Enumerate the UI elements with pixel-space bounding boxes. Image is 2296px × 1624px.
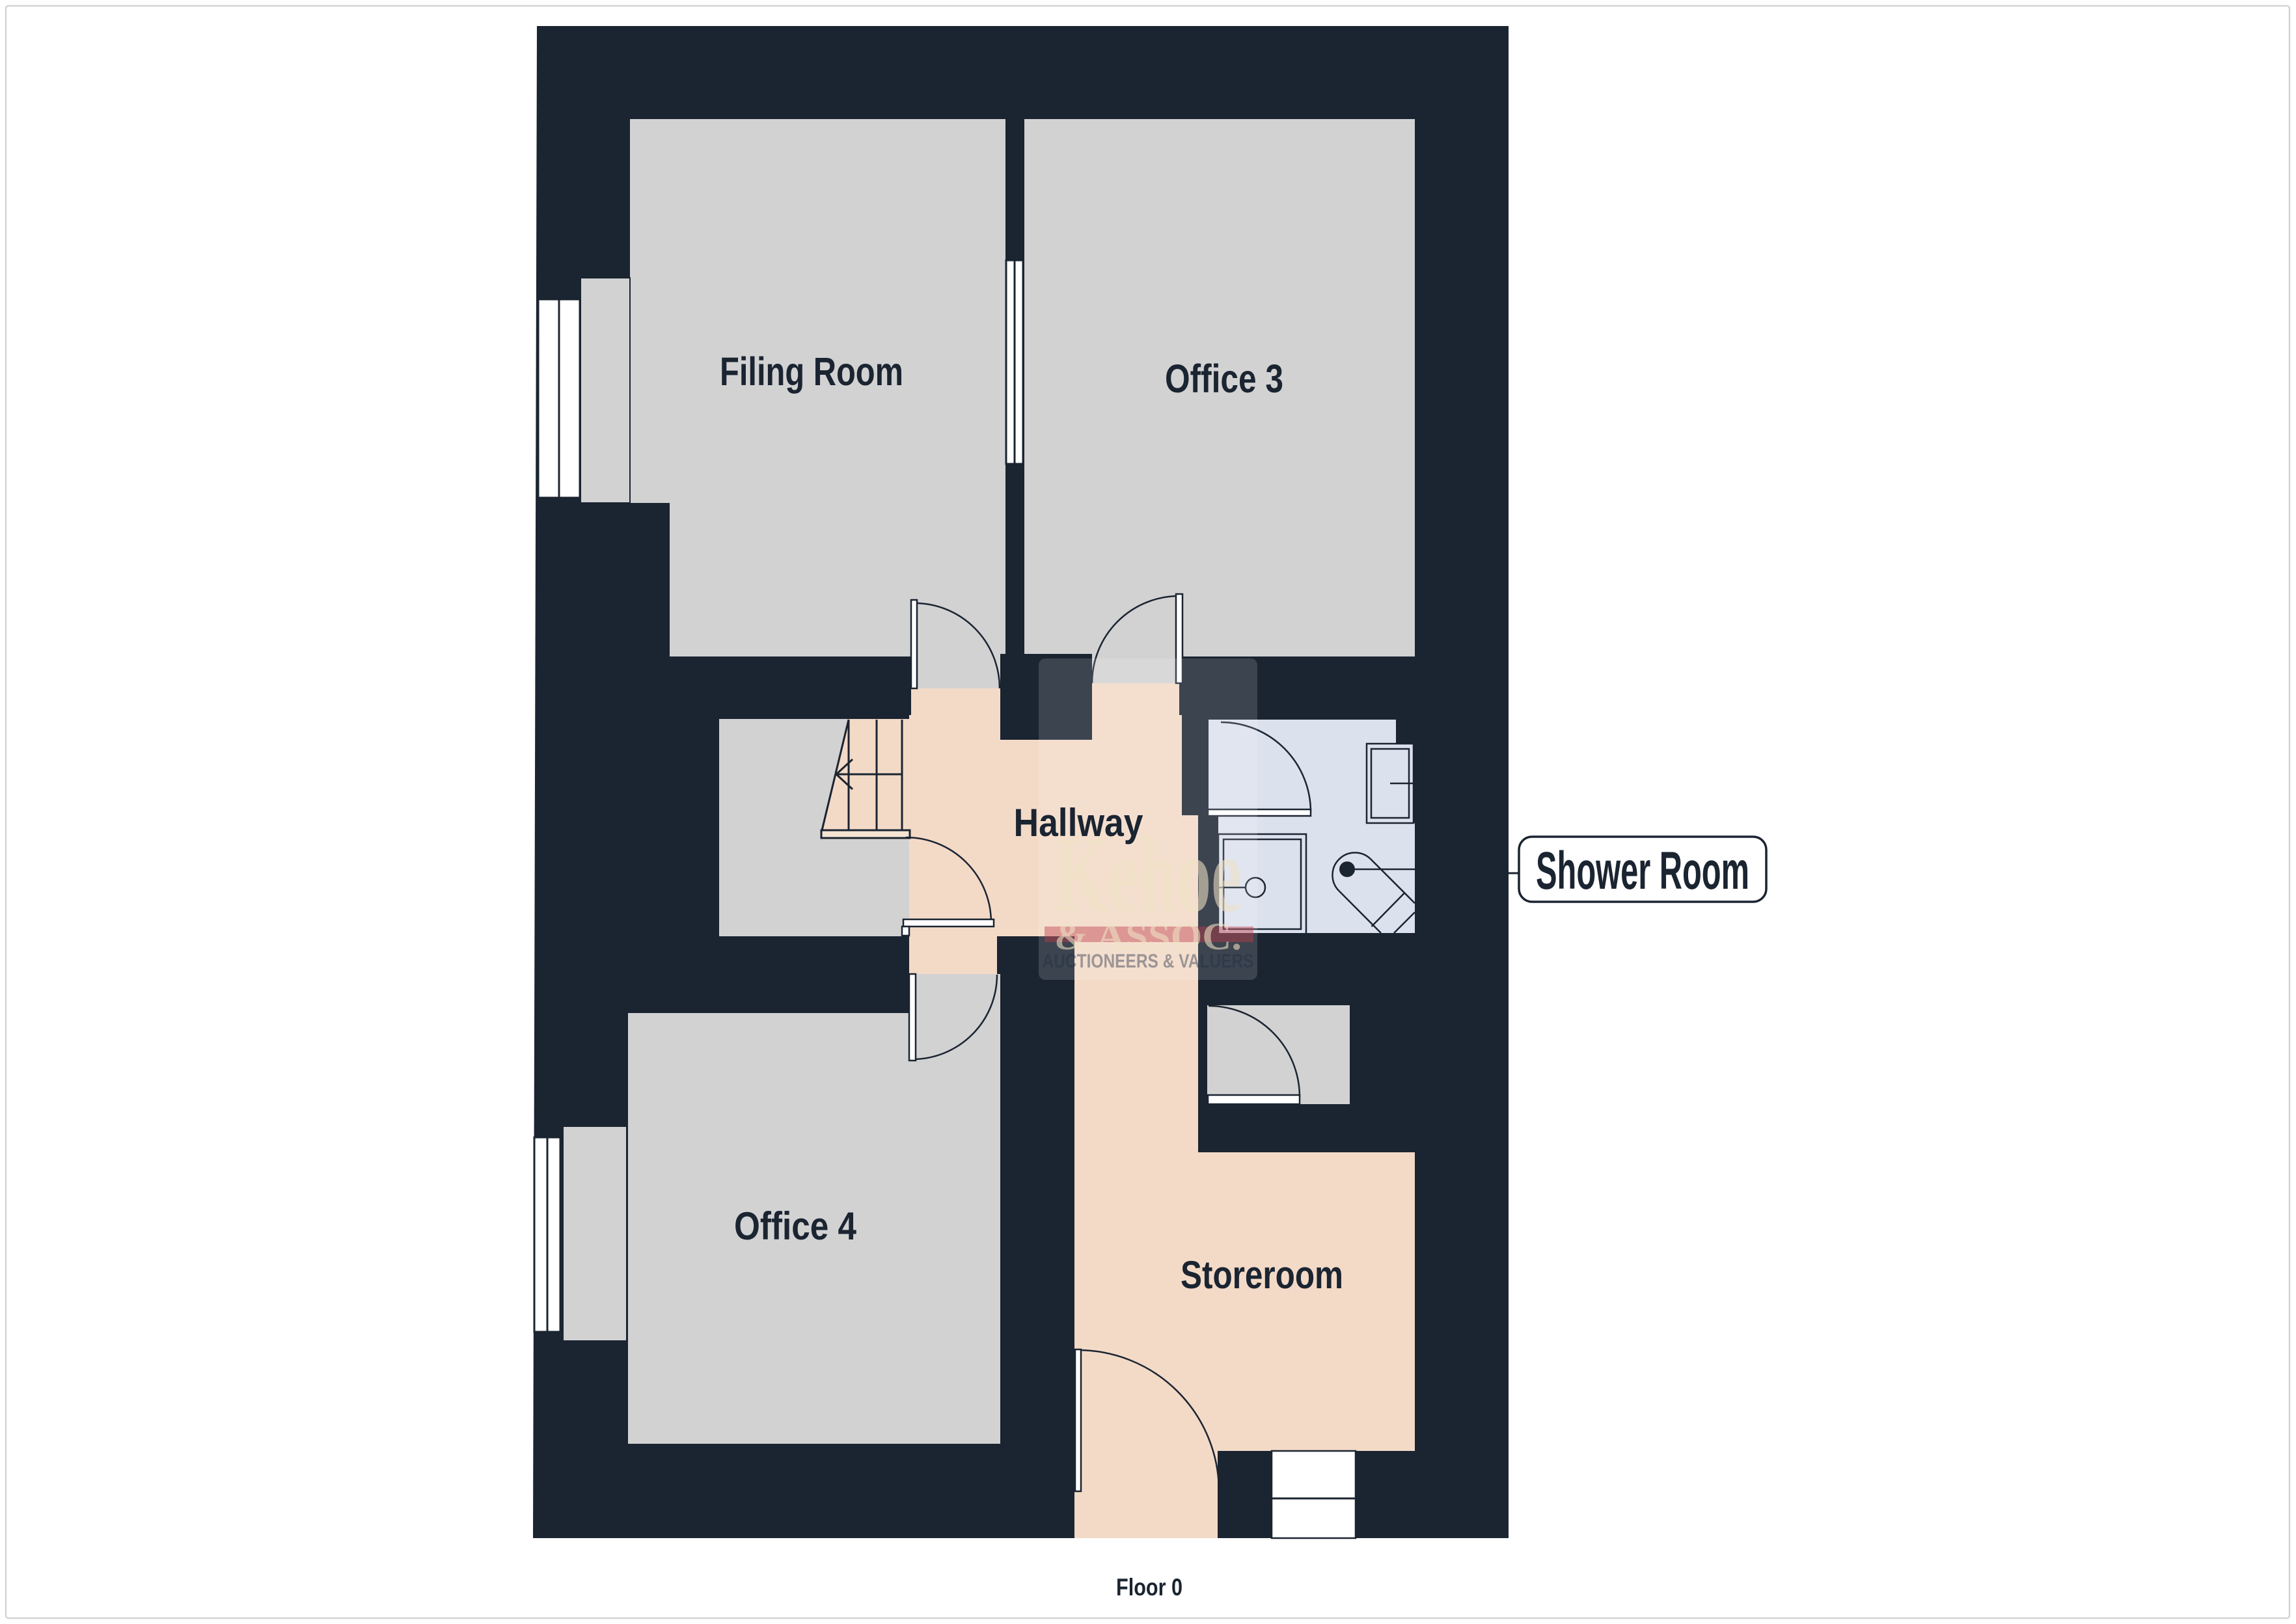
svg-text:Hallway: Hallway (1014, 801, 1144, 845)
svg-text:Floor 0: Floor 0 (1116, 1574, 1182, 1601)
svg-text:Office 3: Office 3 (1165, 357, 1283, 401)
svg-text:Shower Room: Shower Room (1536, 841, 1749, 900)
svg-text:Storeroom: Storeroom (1181, 1253, 1343, 1297)
svg-text:Filing Room: Filing Room (720, 349, 903, 394)
svg-text:AUCTIONEERS & VALUERS: AUCTIONEERS & VALUERS (1043, 951, 1254, 972)
svg-text:Office 4: Office 4 (734, 1204, 857, 1248)
